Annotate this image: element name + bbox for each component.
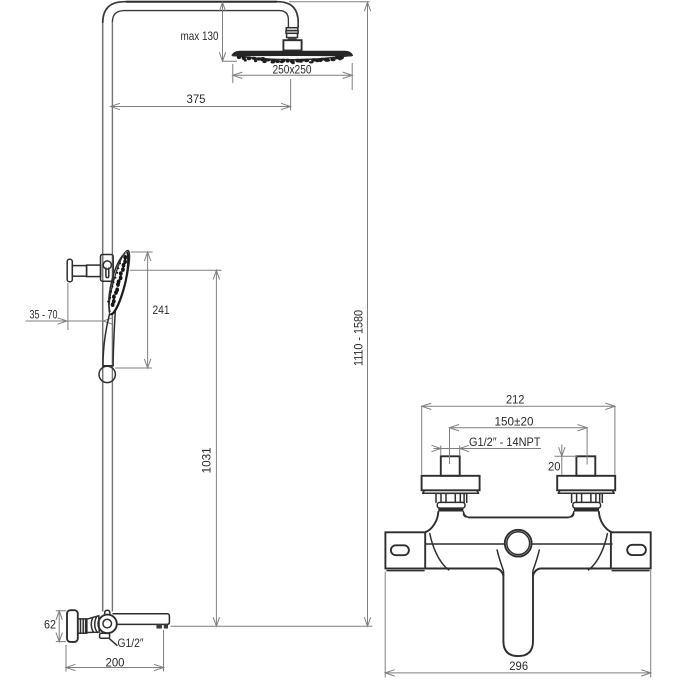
svg-text:max 130: max 130 (181, 29, 219, 43)
svg-text:35 - 70: 35 - 70 (30, 308, 58, 322)
svg-text:G1/2″: G1/2″ (118, 636, 145, 650)
svg-text:1031: 1031 (200, 447, 214, 473)
svg-text:G1/2″ - 14NPT: G1/2″ - 14NPT (469, 435, 541, 449)
svg-text:1110 - 1580: 1110 - 1580 (352, 310, 366, 366)
svg-text:241: 241 (153, 303, 170, 317)
svg-text:150±20: 150±20 (495, 414, 534, 428)
svg-text:62: 62 (44, 618, 56, 632)
svg-text:375: 375 (187, 92, 206, 106)
svg-text:20: 20 (548, 459, 561, 473)
svg-text:200: 200 (106, 656, 125, 670)
svg-text:212: 212 (506, 393, 525, 407)
svg-text:250x250: 250x250 (273, 63, 312, 77)
svg-text:296: 296 (509, 659, 528, 673)
